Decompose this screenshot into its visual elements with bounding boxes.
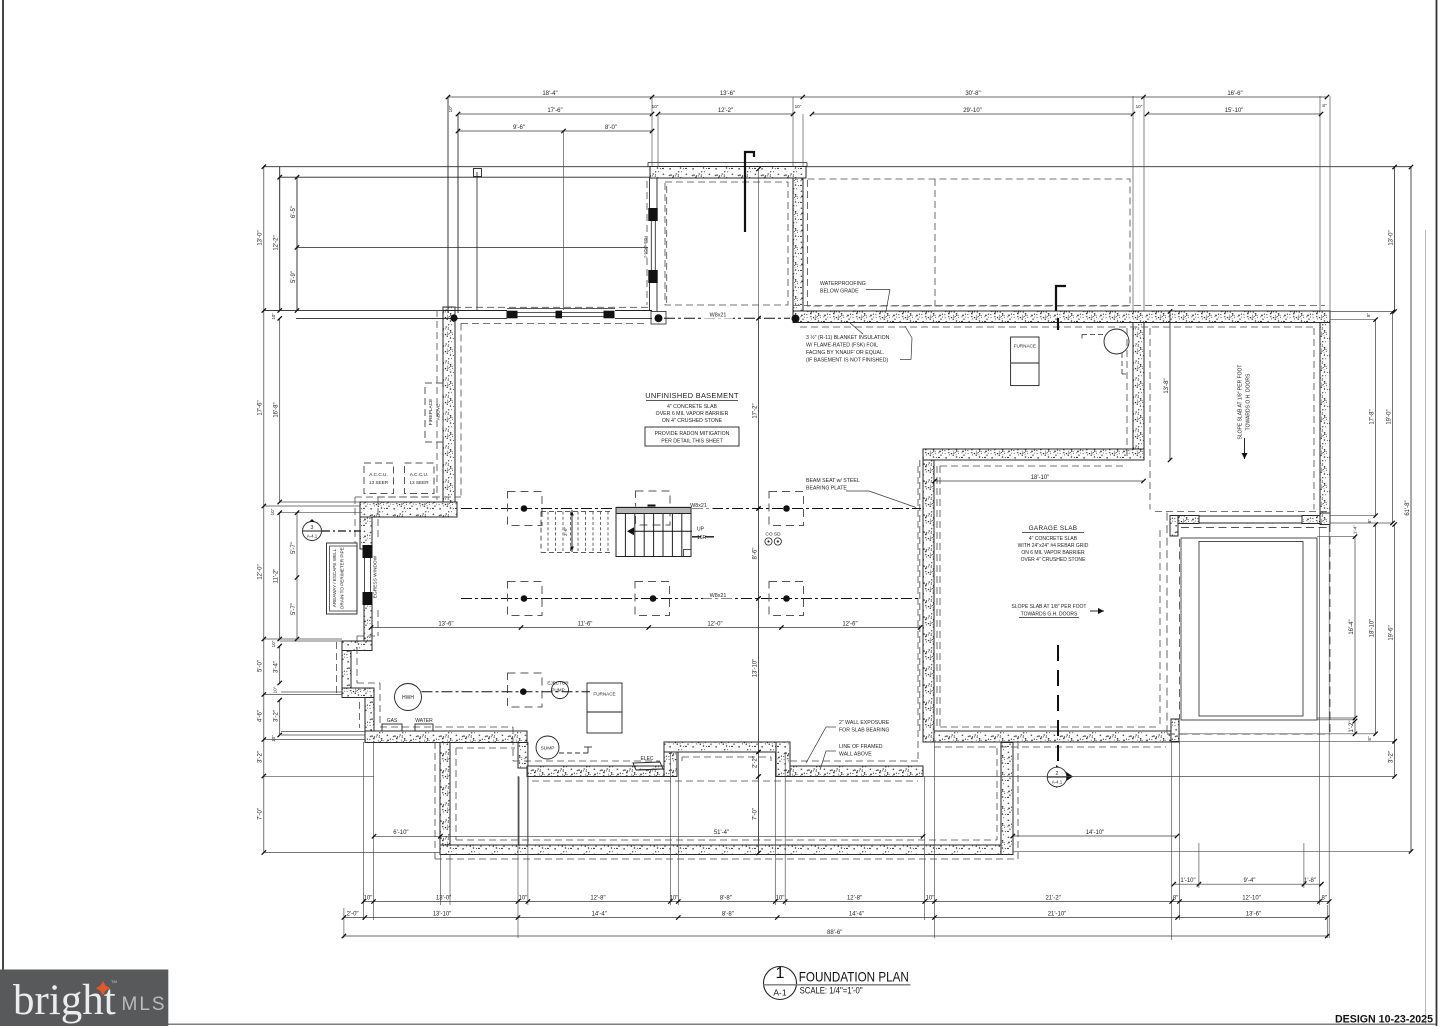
svg-text:5'-7": 5'-7"	[291, 603, 297, 615]
svg-text:8": 8"	[1367, 519, 1372, 524]
svg-text:21'-2": 21'-2"	[1045, 895, 1060, 901]
svg-text:13'-6": 13'-6"	[438, 621, 453, 627]
svg-text:14'-4": 14'-4"	[849, 911, 864, 917]
svg-text:3: 3	[311, 525, 314, 531]
svg-text:FURNACE: FURNACE	[593, 692, 615, 697]
svg-text:3 ½" (R-11) BLANKET INSULATION: 3 ½" (R-11) BLANKET INSULATION	[806, 334, 890, 341]
svg-text:1: 1	[776, 965, 785, 982]
svg-text:12'-2": 12'-2"	[274, 235, 280, 250]
svg-text:2: 2	[1056, 771, 1059, 777]
svg-text:61'-8": 61'-8"	[1405, 500, 1411, 515]
svg-text:16'-4": 16'-4"	[1349, 619, 1355, 634]
svg-text:5'-7": 5'-7"	[291, 542, 297, 554]
svg-text:SCALE: 1/4"=1'-0": SCALE: 1/4"=1'-0"	[800, 986, 863, 996]
svg-text:ELEC: ELEC	[640, 756, 653, 762]
svg-text:TOWARDS G.H. DOORS: TOWARDS G.H. DOORS	[1021, 612, 1078, 618]
svg-text:8": 8"	[1322, 103, 1327, 108]
svg-text:1'-4": 1'-4"	[1353, 525, 1358, 535]
svg-text:17'-2": 17'-2"	[752, 403, 758, 418]
svg-text:4" CONCRETE SLAB: 4" CONCRETE SLAB	[1029, 536, 1078, 542]
svg-text:10": 10"	[795, 104, 802, 109]
svg-text:18'-10": 18'-10"	[1369, 619, 1375, 638]
svg-text:16R: 16R	[697, 535, 707, 541]
svg-text:A.C.C.U.: A.C.C.U.	[369, 472, 388, 477]
svg-text:WALL ABOVE: WALL ABOVE	[839, 752, 872, 758]
svg-text:BEAM SEAT w/ STEEL: BEAM SEAT w/ STEEL	[806, 478, 860, 484]
svg-text:12'-0": 12'-0"	[258, 564, 264, 579]
svg-text:5'-9": 5'-9"	[291, 271, 297, 283]
svg-text:13'-10": 13'-10"	[433, 911, 452, 917]
svg-text:3'-2": 3'-2"	[274, 710, 280, 722]
svg-text:A-4.1: A-4.1	[1052, 780, 1063, 785]
svg-text:W8x21: W8x21	[690, 503, 707, 509]
svg-text:6'-5": 6'-5"	[291, 206, 297, 218]
svg-text:7'-0": 7'-0"	[752, 808, 758, 820]
svg-text:BELOW GRADE: BELOW GRADE	[820, 289, 859, 295]
svg-text:8'-8": 8'-8"	[720, 895, 732, 901]
svg-text:3'-4": 3'-4"	[274, 661, 280, 673]
svg-text:6'-10": 6'-10"	[393, 830, 408, 836]
svg-text:18'-4": 18'-4"	[542, 91, 557, 97]
svg-text:OVER 6 MIL VAPOR BARRIER: OVER 6 MIL VAPOR BARRIER	[656, 411, 729, 417]
svg-text:A.C.C.U.: A.C.C.U.	[410, 472, 429, 477]
svg-text:8'-6": 8'-6"	[752, 548, 758, 560]
svg-text:2'-2": 2'-2"	[752, 756, 758, 768]
svg-text:PER DETAIL THIS SHEET: PER DETAIL THIS SHEET	[661, 439, 723, 445]
svg-text:10": 10"	[776, 895, 785, 901]
svg-text:10": 10"	[271, 313, 276, 320]
svg-text:13'-6": 13'-6"	[720, 91, 735, 97]
svg-text:13'-0": 13'-0"	[258, 230, 264, 245]
svg-text:10": 10"	[926, 895, 935, 901]
svg-text:3'-2": 3'-2"	[258, 751, 264, 763]
svg-text:FOUNDATION PLAN: FOUNDATION PLAN	[799, 970, 909, 985]
svg-text:10": 10"	[448, 105, 453, 112]
svg-text:51'-4": 51'-4"	[714, 830, 729, 836]
svg-text:88'-6": 88'-6"	[827, 930, 842, 936]
svg-text:14'-4": 14'-4"	[592, 911, 607, 917]
svg-text:12'-2": 12'-2"	[718, 108, 733, 114]
svg-text:CO SD: CO SD	[765, 532, 781, 538]
svg-text:16'-8": 16'-8"	[274, 402, 280, 417]
svg-text:A-4.1: A-4.1	[307, 534, 318, 539]
svg-text:DRAIN TO PERIMETER PIPE: DRAIN TO PERIMETER PIPE	[340, 547, 345, 609]
svg-text:10": 10"	[1136, 104, 1143, 109]
svg-text:1'-2": 1'-2"	[1349, 721, 1355, 733]
svg-text:5'-0": 5'-0"	[258, 660, 264, 672]
svg-text:3'-0": 3'-0"	[563, 527, 568, 536]
svg-text:8'-8": 8'-8"	[722, 911, 734, 917]
svg-text:12'-6": 12'-6"	[842, 621, 857, 627]
svg-text:W8x21: W8x21	[710, 313, 727, 319]
svg-text:GAS: GAS	[387, 718, 398, 724]
svg-text:12'-8": 12'-8"	[847, 895, 862, 901]
svg-text:EJECTOR: EJECTOR	[547, 681, 569, 686]
svg-text:LINE OF FRAMED: LINE OF FRAMED	[839, 744, 883, 750]
svg-text:PUMP: PUMP	[551, 688, 564, 693]
svg-text:10": 10"	[652, 104, 659, 109]
svg-text:13 SEER: 13 SEER	[369, 480, 389, 485]
svg-text:8": 8"	[1321, 895, 1326, 901]
svg-text:13'-0": 13'-0"	[436, 895, 451, 901]
svg-text:10": 10"	[271, 735, 276, 742]
svg-text:4" CONCRETE SLAB: 4" CONCRETE SLAB	[667, 404, 718, 410]
svg-text:8": 8"	[1173, 895, 1178, 901]
svg-text:13'-10": 13'-10"	[752, 659, 758, 678]
svg-text:16'-6": 16'-6"	[1227, 91, 1242, 97]
svg-text:TOWARDS O.H. DOORS: TOWARDS O.H. DOORS	[1246, 373, 1252, 430]
svg-text:10": 10"	[364, 895, 373, 901]
svg-text:15'-10": 15'-10"	[1225, 108, 1244, 114]
svg-text:SLOPE SLAB AT 1/8" PER FOOT: SLOPE SLAB AT 1/8" PER FOOT	[1238, 365, 1244, 440]
svg-text:FOR SLAB BEARING: FOR SLAB BEARING	[839, 728, 889, 734]
svg-text:WITH 24"x24" #4 REBAR GRID: WITH 24"x24" #4 REBAR GRID	[1018, 543, 1089, 549]
svg-text:8'-0": 8'-0"	[605, 125, 617, 131]
svg-text:17'-6": 17'-6"	[258, 400, 264, 415]
svg-text:W8x21: W8x21	[710, 593, 727, 599]
svg-text:13'-0": 13'-0"	[1388, 230, 1394, 245]
svg-text:8": 8"	[1366, 313, 1371, 318]
svg-text:BEARING PLATE: BEARING PLATE	[806, 486, 847, 492]
svg-text:8": 8"	[1367, 736, 1372, 741]
svg-text:7'-0": 7'-0"	[258, 808, 264, 820]
svg-text:11'-2": 11'-2"	[274, 569, 280, 584]
svg-text:DESIGN 10-23-2025: DESIGN 10-23-2025	[1335, 1014, 1433, 1026]
svg-text:30'-8": 30'-8"	[965, 91, 980, 97]
svg-text:bright: bright	[13, 977, 116, 1024]
svg-text:GARAGE SLAB: GARAGE SLAB	[1029, 525, 1078, 532]
svg-text:FIREPLACE: FIREPLACE	[428, 399, 434, 426]
svg-text:11'-6": 11'-6"	[578, 621, 593, 627]
svg-text:PROVIDE RADON MITIGATION: PROVIDE RADON MITIGATION	[655, 431, 730, 437]
svg-text:17'-8": 17'-8"	[1369, 409, 1375, 424]
svg-text:18'-10": 18'-10"	[1031, 475, 1050, 481]
svg-text:TM: TM	[111, 979, 117, 984]
svg-text:2" WALL EXPOSURE: 2" WALL EXPOSURE	[839, 720, 890, 726]
svg-text:UP: UP	[697, 527, 705, 533]
svg-text:UNFINISHED BASEMENT: UNFINISHED BASEMENT	[645, 391, 739, 400]
svg-text:21'-10": 21'-10"	[1048, 911, 1067, 917]
svg-text:12'-0": 12'-0"	[707, 621, 722, 627]
svg-text:ABOVE: ABOVE	[436, 404, 442, 421]
svg-text:10": 10"	[670, 895, 679, 901]
svg-text:W/ FLAME-RATED (FSK) FOIL: W/ FLAME-RATED (FSK) FOIL	[806, 343, 878, 349]
svg-text:19'-6": 19'-6"	[1388, 625, 1394, 640]
svg-text:EGRESS WINDOW: EGRESS WINDOW	[373, 555, 379, 598]
svg-text:MLS: MLS	[122, 994, 167, 1015]
svg-text:13'-8": 13'-8"	[1164, 378, 1170, 393]
svg-text:A-1: A-1	[773, 988, 787, 998]
svg-text:9'-4": 9'-4"	[1244, 878, 1256, 884]
svg-text:AREAWAY / ESCAPE WELL: AREAWAY / ESCAPE WELL	[332, 548, 337, 607]
svg-text:FURNACE: FURNACE	[1014, 344, 1036, 349]
svg-text:(IF BASEMENT IS NOT FINISHED): (IF BASEMENT IS NOT FINISHED)	[806, 358, 889, 364]
svg-text:1'-10": 1'-10"	[1180, 878, 1195, 884]
svg-text:2'-0": 2'-0"	[347, 911, 359, 917]
svg-text:14'-10": 14'-10"	[1086, 830, 1105, 836]
svg-text:ON 4" CRUSHED STONE: ON 4" CRUSHED STONE	[662, 418, 723, 424]
svg-text:4'-6": 4'-6"	[258, 710, 264, 722]
svg-text:WATER: WATER	[415, 718, 433, 724]
svg-text:10": 10"	[519, 895, 528, 901]
svg-text:12'-8": 12'-8"	[590, 895, 605, 901]
svg-text:29'-10": 29'-10"	[963, 108, 982, 114]
svg-text:10": 10"	[273, 686, 278, 693]
svg-text:19'-0": 19'-0"	[1386, 409, 1392, 424]
svg-text:HWH: HWH	[402, 695, 414, 701]
svg-text:SUMP: SUMP	[541, 746, 555, 752]
svg-text:3'-2": 3'-2"	[1388, 751, 1394, 763]
svg-text:SLOPE SLAB AT 1/8" PER FOOT: SLOPE SLAB AT 1/8" PER FOOT	[1012, 604, 1087, 610]
svg-text:1'-8": 1'-8"	[1304, 878, 1316, 884]
svg-text:9'-6": 9'-6"	[513, 125, 525, 131]
svg-text:10": 10"	[270, 508, 275, 515]
svg-text:WATERPROOFING: WATERPROOFING	[820, 281, 866, 287]
svg-text:17'-6": 17'-6"	[547, 108, 562, 114]
svg-text:10": 10"	[271, 640, 276, 647]
svg-text:FACING BY 'KNAUF' OR EQUAL.: FACING BY 'KNAUF' OR EQUAL.	[806, 350, 884, 356]
svg-text:13 SEER: 13 SEER	[409, 480, 429, 485]
svg-text:12'-10": 12'-10"	[1242, 895, 1261, 901]
svg-text:OVER 4" CRUSHED STONE: OVER 4" CRUSHED STONE	[1021, 557, 1086, 563]
svg-text:ON 6 MIL VAPOR BARRIER: ON 6 MIL VAPOR BARRIER	[1021, 550, 1085, 556]
svg-text:13'-6": 13'-6"	[1246, 911, 1261, 917]
